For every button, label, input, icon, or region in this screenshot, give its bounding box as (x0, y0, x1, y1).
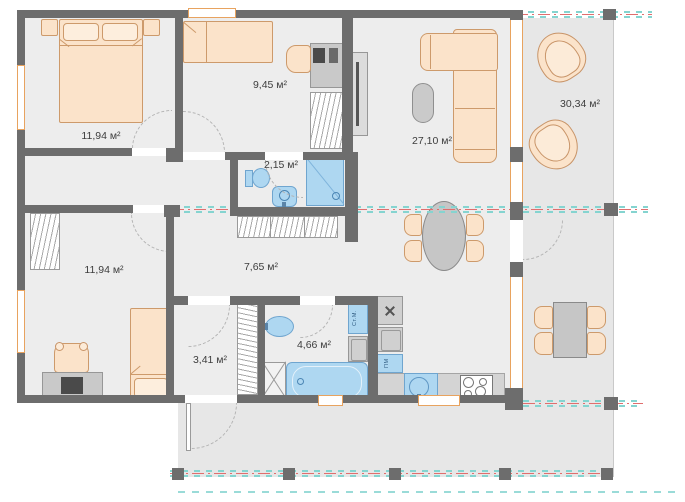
glass-wall (510, 162, 523, 202)
bath-sink (265, 316, 294, 337)
terrace-door-opening (510, 220, 523, 262)
computer-monitor (313, 48, 325, 63)
shower-drain (332, 192, 340, 200)
wardrobe-divider (270, 216, 271, 238)
hall-wardrobe (237, 216, 338, 238)
wardrobe (310, 92, 343, 149)
porch-floor (178, 403, 614, 477)
terrace-post (603, 9, 616, 20)
terrace-chair (534, 332, 553, 355)
computer-tower (329, 48, 338, 63)
post (510, 202, 523, 220)
window (188, 8, 236, 18)
wall (368, 296, 378, 403)
wardrobe (30, 213, 60, 270)
single-bed (183, 21, 273, 63)
dishwasher-label: ПМ (384, 355, 396, 372)
room-label-shower-wc: 2,15 м² (243, 159, 319, 171)
window (17, 65, 25, 130)
wall (265, 296, 300, 305)
entry-door-opening (185, 395, 237, 403)
section-line (516, 11, 652, 18)
corner-post (505, 388, 523, 410)
wardrobe-divider (304, 216, 305, 238)
window (418, 395, 460, 406)
porch-post (172, 468, 184, 480)
blanket-fold (59, 45, 143, 46)
wall (230, 207, 358, 216)
glass-wall (510, 277, 523, 388)
bed-pillow-line (206, 21, 207, 63)
dining-chair (404, 214, 422, 236)
porch-post (601, 468, 613, 480)
wall (343, 395, 418, 403)
wall (17, 395, 185, 403)
washing-machine-label: Ст.М. (352, 304, 365, 332)
terrace-table (553, 302, 587, 358)
terrace-post (604, 397, 618, 410)
wall (236, 10, 510, 18)
room-label-bathroom: 4,66 м² (271, 339, 357, 351)
dining-chair (466, 214, 484, 236)
door-opening (300, 296, 335, 305)
terrace-chair (534, 306, 553, 329)
door-opening (183, 152, 225, 160)
glass-wall (510, 20, 523, 147)
door-opening (188, 296, 230, 305)
wall (17, 205, 133, 213)
coffee-table (412, 83, 434, 123)
wall (342, 18, 353, 154)
window (17, 290, 25, 353)
pillow (63, 23, 99, 41)
post (510, 147, 523, 162)
chair-armrest (55, 342, 64, 351)
desk-chair (286, 45, 311, 73)
room-label-terrace: 30,34 м² (537, 98, 623, 110)
room-label-hallway: 7,65 м² (218, 261, 304, 273)
burner (479, 378, 487, 386)
terrace-chair (587, 306, 606, 329)
porch-post (499, 468, 511, 480)
bathtub-drain (297, 378, 304, 385)
tv-screen (356, 62, 359, 126)
section-line (172, 206, 238, 213)
porch-post (283, 468, 295, 480)
wall (175, 18, 183, 152)
wall (237, 395, 318, 403)
room-label-entry: 3,41 м² (167, 354, 253, 366)
entry-wardrobe (237, 300, 258, 395)
sofa-armrest-line (455, 149, 495, 150)
sofa-seat (420, 33, 498, 71)
terrace-chair (587, 332, 606, 355)
floor-plan: Ст.М. ПМ (0, 0, 685, 502)
cabinet-inner (381, 330, 401, 351)
wall (345, 152, 358, 242)
window (318, 395, 343, 406)
room-label-bedroom-bottom: 11,94 м² (61, 264, 147, 276)
dining-chair (404, 240, 422, 262)
door-leaf (186, 403, 191, 451)
post (510, 10, 523, 20)
room-label-kids-room: 9,45 м² (227, 79, 313, 91)
wall (25, 148, 132, 156)
computer (61, 377, 83, 394)
wall (166, 213, 174, 403)
terrace-boundary-line (523, 400, 643, 407)
wall (17, 10, 25, 65)
burner (463, 377, 474, 388)
wall (460, 395, 510, 403)
nightstand (41, 19, 58, 36)
pillow (102, 23, 138, 41)
wall (166, 296, 188, 305)
post (166, 148, 183, 162)
nightstand (143, 19, 160, 36)
room-label-bedroom-top: 11,94 м² (58, 130, 144, 142)
wall (258, 296, 265, 403)
roof-outline (178, 491, 680, 493)
chair-armrest (79, 342, 88, 351)
sofa-armrest-line (430, 35, 431, 69)
room-label-living-room: 27,10 м² (389, 135, 475, 147)
dining-chair (466, 240, 484, 262)
sofa-cushion-line (455, 108, 495, 109)
porch-post (389, 468, 401, 480)
terrace-post (604, 203, 618, 216)
post (510, 262, 523, 277)
wall (17, 10, 188, 18)
